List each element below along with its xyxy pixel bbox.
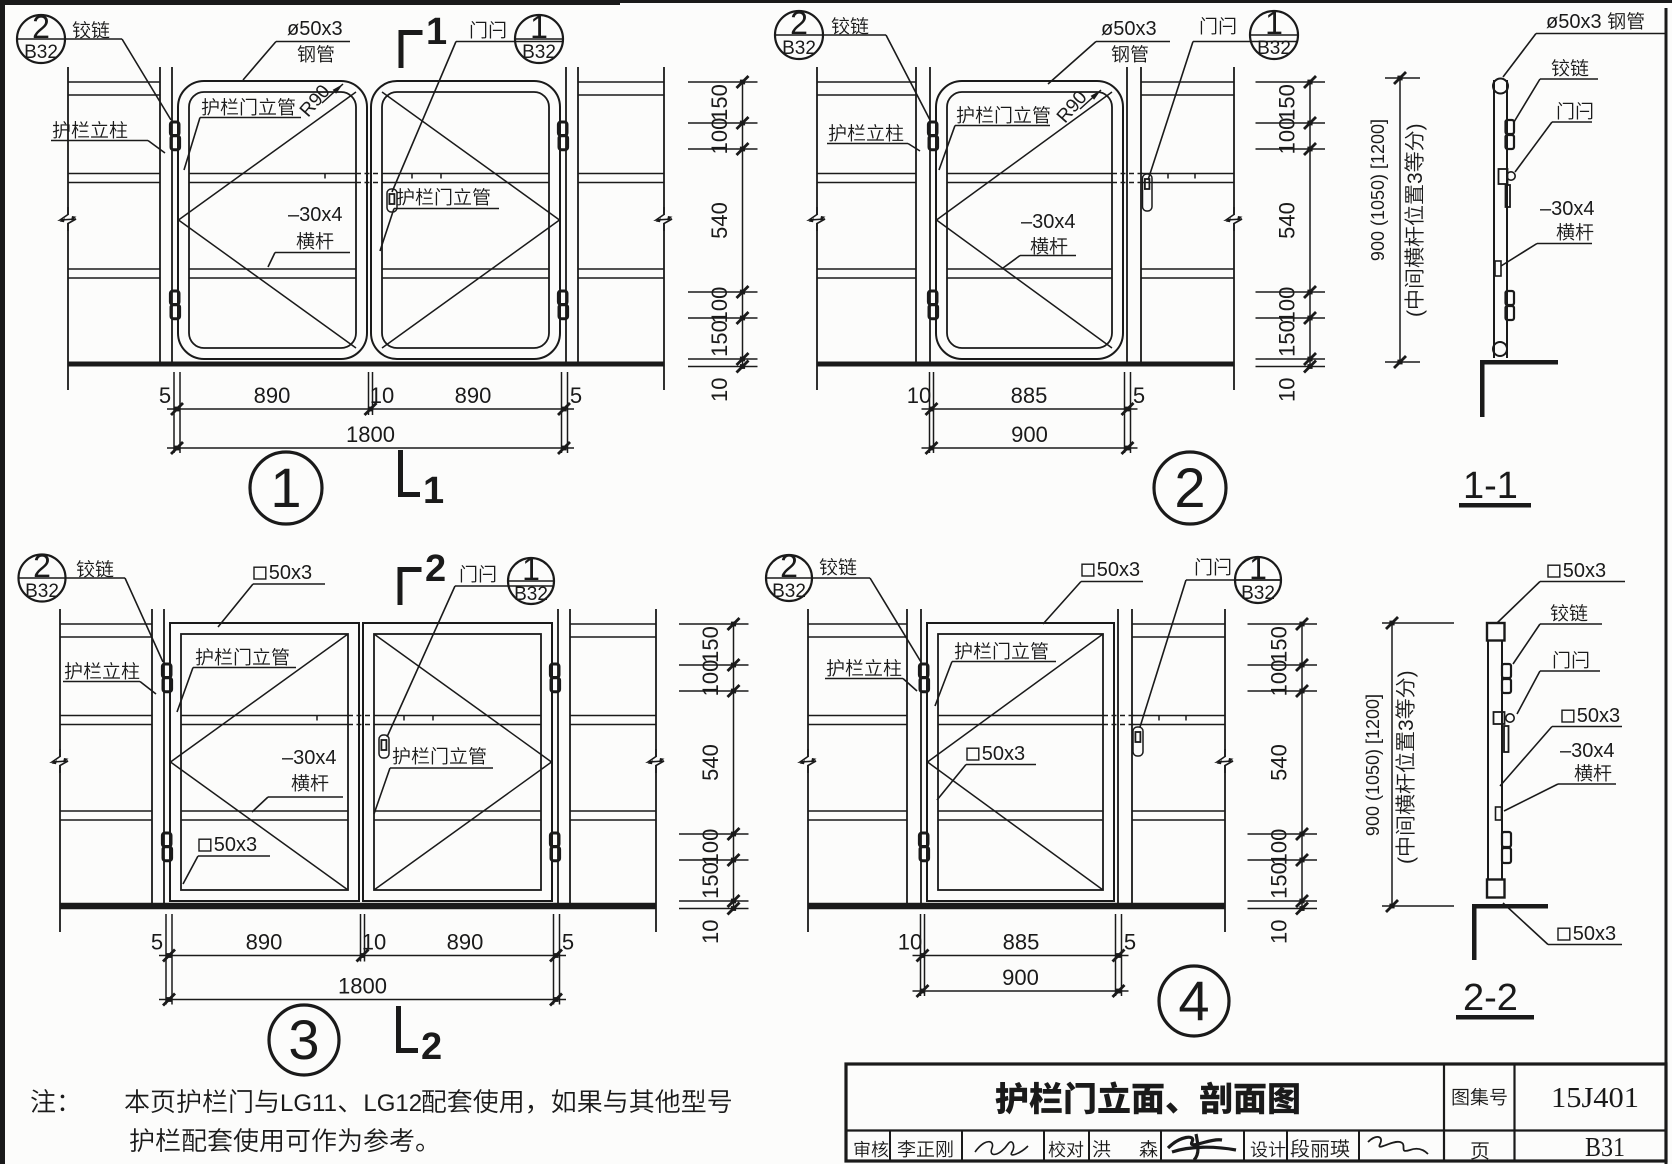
svg-text:1: 1 [530, 9, 548, 45]
svg-text:1: 1 [1265, 5, 1283, 41]
svg-text:B32: B32 [522, 42, 556, 63]
svg-text:LG12: LG12 [363, 1090, 422, 1117]
svg-text:2: 2 [32, 9, 50, 45]
svg-text:150: 150 [1267, 626, 1292, 663]
svg-text:3: 3 [1395, 719, 1418, 731]
svg-text:50x3: 50x3 [1097, 559, 1140, 581]
svg-text:150: 150 [698, 626, 723, 663]
svg-text:1: 1 [1249, 550, 1267, 586]
svg-text:): ) [1404, 123, 1427, 130]
svg-text:LG11: LG11 [280, 1090, 337, 1117]
svg-text:(: ( [1404, 310, 1427, 317]
svg-text:100: 100 [698, 829, 723, 866]
svg-text:10: 10 [698, 920, 723, 944]
svg-text:150: 150 [1275, 320, 1300, 357]
svg-text:B32: B32 [25, 581, 59, 602]
svg-text:1: 1 [423, 470, 444, 512]
svg-text:2: 2 [33, 548, 51, 584]
svg-text:5: 5 [1133, 383, 1145, 408]
svg-text:100: 100 [707, 287, 732, 324]
svg-text:100: 100 [698, 660, 723, 697]
svg-text:1: 1 [426, 11, 447, 53]
svg-text:–30x4: –30x4 [288, 204, 343, 226]
svg-text:1800: 1800 [346, 422, 395, 447]
svg-text:B31: B31 [1585, 1132, 1625, 1162]
svg-text:100: 100 [1267, 660, 1292, 697]
svg-text:ø50x3: ø50x3 [1101, 18, 1157, 40]
svg-text:540: 540 [1275, 202, 1300, 239]
svg-text:B32: B32 [1257, 38, 1291, 59]
svg-text:1-1: 1-1 [1463, 465, 1518, 507]
svg-text:10: 10 [1267, 920, 1292, 944]
svg-text:10: 10 [370, 383, 394, 408]
svg-text:2: 2 [780, 548, 798, 584]
svg-text:885: 885 [1011, 383, 1048, 408]
svg-text:–30x4: –30x4 [282, 747, 337, 769]
svg-text:15J401: 15J401 [1551, 1083, 1639, 1114]
svg-text:10: 10 [907, 383, 931, 408]
svg-text:B32: B32 [514, 584, 548, 605]
svg-text:10: 10 [707, 378, 732, 402]
svg-text:B32: B32 [24, 42, 58, 63]
svg-text:–30x4: –30x4 [1560, 740, 1615, 762]
svg-text:540: 540 [698, 744, 723, 781]
svg-text:B32: B32 [772, 581, 806, 602]
svg-text:3: 3 [288, 1008, 319, 1071]
svg-text:2: 2 [421, 1026, 442, 1068]
svg-text:5: 5 [562, 930, 574, 955]
svg-text:890: 890 [246, 930, 283, 955]
svg-text:100: 100 [1275, 287, 1300, 324]
svg-text:50x3: 50x3 [982, 743, 1025, 765]
svg-text:1: 1 [522, 551, 540, 587]
svg-text:50x3: 50x3 [214, 834, 257, 856]
svg-text:900: 900 [1011, 422, 1048, 447]
svg-text:4: 4 [1178, 969, 1209, 1032]
svg-text:150: 150 [1275, 84, 1300, 121]
svg-text:50x3: 50x3 [1577, 705, 1620, 727]
svg-text:5: 5 [159, 383, 171, 408]
svg-text:50x3: 50x3 [1573, 923, 1616, 945]
svg-text:890: 890 [254, 383, 291, 408]
svg-text:ø50x3: ø50x3 [1546, 11, 1602, 33]
svg-text:2-2: 2-2 [1463, 977, 1518, 1019]
svg-text:100: 100 [707, 118, 732, 155]
svg-text:100: 100 [1267, 829, 1292, 866]
svg-text:1800: 1800 [338, 974, 387, 999]
svg-text:10: 10 [898, 930, 922, 955]
svg-text:50x3: 50x3 [1563, 560, 1606, 582]
svg-text:1: 1 [270, 456, 301, 519]
svg-text:540: 540 [707, 202, 732, 239]
svg-text:50x3: 50x3 [269, 562, 312, 584]
svg-text:3: 3 [1404, 172, 1427, 184]
svg-text:5: 5 [570, 383, 582, 408]
svg-text:540: 540 [1267, 744, 1292, 781]
svg-text:885: 885 [1003, 930, 1040, 955]
svg-text:–30x4: –30x4 [1021, 211, 1076, 233]
svg-text:–30x4: –30x4 [1540, 198, 1595, 220]
svg-text:(: ( [1395, 857, 1418, 864]
svg-text:150: 150 [698, 862, 723, 899]
svg-text:900 (1050) [1200]: 900 (1050) [1200] [1368, 119, 1388, 261]
svg-text:B32: B32 [1241, 583, 1275, 604]
svg-text:900 (1050) [1200]: 900 (1050) [1200] [1363, 694, 1383, 836]
svg-text:2: 2 [1174, 456, 1205, 519]
svg-text:10: 10 [362, 930, 386, 955]
svg-text:ø50x3: ø50x3 [287, 18, 343, 40]
svg-text:2: 2 [425, 548, 446, 590]
svg-text:890: 890 [455, 383, 492, 408]
svg-text:890: 890 [447, 930, 484, 955]
svg-text:5: 5 [151, 930, 163, 955]
svg-text:150: 150 [1267, 862, 1292, 899]
svg-text:100: 100 [1275, 118, 1300, 155]
svg-text:B32: B32 [782, 38, 816, 59]
svg-text:2: 2 [790, 5, 808, 41]
svg-text:): ) [1395, 670, 1418, 677]
svg-text:10: 10 [1275, 378, 1300, 402]
svg-text:900: 900 [1002, 965, 1039, 990]
svg-text:5: 5 [1124, 930, 1136, 955]
svg-text:150: 150 [707, 320, 732, 357]
svg-text:150: 150 [707, 84, 732, 121]
